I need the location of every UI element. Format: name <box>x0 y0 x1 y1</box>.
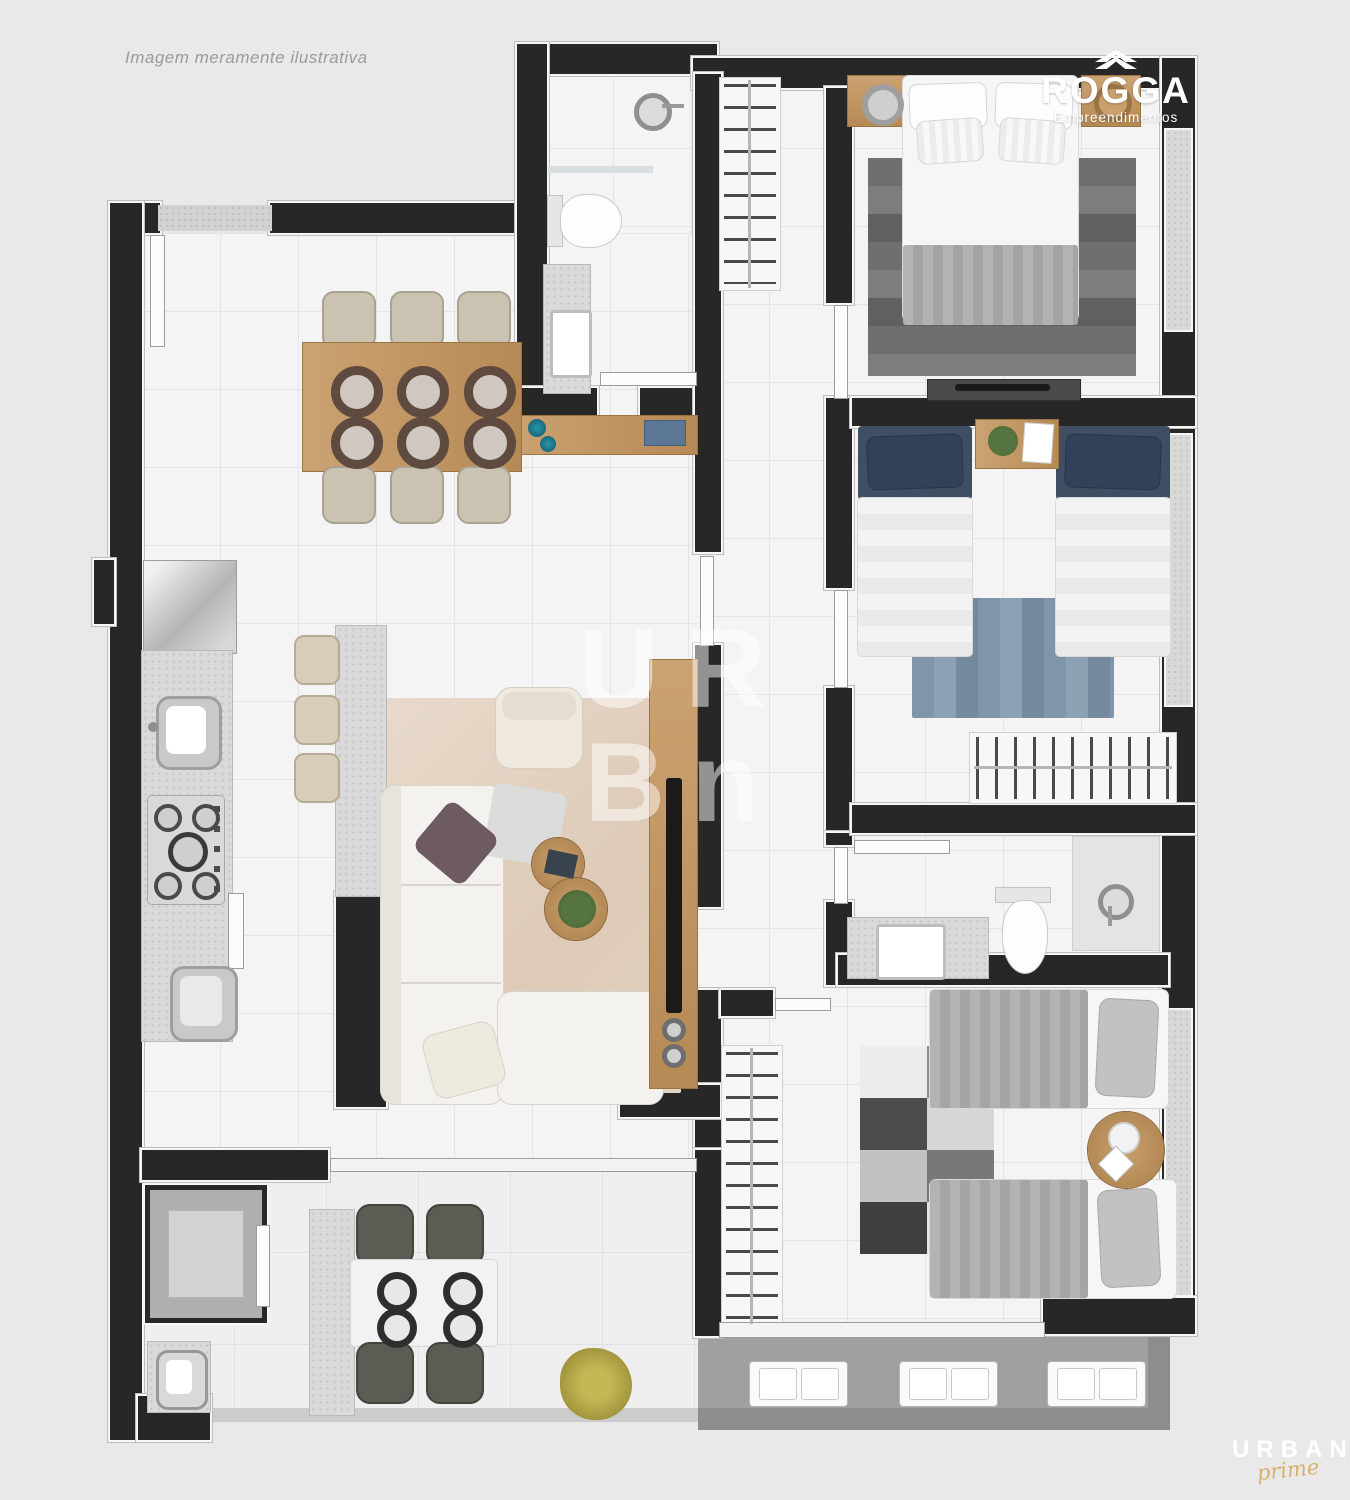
vanity2-sink <box>876 924 946 980</box>
balcony-edge-right <box>1148 1330 1170 1422</box>
bed2-right-pillow <box>1065 434 1161 489</box>
burner-icon <box>168 832 208 872</box>
teal-vase-icon <box>540 436 556 452</box>
bar-stool <box>294 695 340 745</box>
balcony-edge-bottom <box>698 1408 1170 1430</box>
rogga-logo-tagline: Empreendimentos <box>1028 110 1204 125</box>
faucet-icon <box>148 722 158 732</box>
door-bathroom2 <box>834 847 848 904</box>
burner-icon <box>154 804 182 832</box>
dining-chair <box>457 466 511 524</box>
shower2-arm <box>1108 906 1112 926</box>
terrace-chair <box>426 1342 484 1404</box>
place-setting <box>397 366 449 418</box>
watermark-line1: UR <box>560 612 810 726</box>
bathroom1-door-leaf <box>600 372 697 386</box>
bar-stool <box>294 635 340 685</box>
shower-glass-partition <box>548 166 653 173</box>
bed2-left-pillow <box>867 434 963 489</box>
bed2-closet-rail <box>974 766 1172 769</box>
wall-bathroom1-left <box>517 44 547 416</box>
dining-chair <box>322 466 376 524</box>
bed3-bottom-pillow <box>1098 1189 1161 1288</box>
wall-bedroom3-bottom <box>1043 1298 1195 1334</box>
wall-bedroom2-left-a <box>826 398 852 588</box>
rug-patch <box>860 1098 927 1150</box>
master-cushion-left <box>917 118 984 164</box>
plant-icon <box>558 890 596 928</box>
rogga-logo-name: ROGGA <box>1028 72 1204 109</box>
service-closet-floor <box>168 1210 244 1298</box>
terrace-chair <box>426 1204 484 1266</box>
wall-bedroom2-left-b <box>826 688 852 833</box>
rogga-logo: ROGGA Empreendimentos <box>1028 50 1204 125</box>
wall-living-terrace-divider <box>142 1150 328 1180</box>
kitchen-sink-2-basin <box>180 976 222 1026</box>
bed2-decor-sign <box>1023 423 1054 463</box>
ac-unit <box>900 1362 997 1406</box>
ac-fan <box>1058 1369 1094 1399</box>
closet-master-rail <box>748 80 751 288</box>
sofa-chaise <box>498 992 663 1104</box>
dining-chair <box>390 291 444 349</box>
sofa-cushion-seam <box>401 982 501 984</box>
wall-top-left-b <box>270 203 540 233</box>
threshold-bedroom3-balcony <box>719 1322 1045 1338</box>
kitchen-sink-1-basin <box>166 706 206 754</box>
bathroom2-towel-bar <box>854 840 950 854</box>
speaker-icon <box>662 1018 686 1042</box>
nightstand-tray-icon <box>862 84 904 126</box>
speaker-icon <box>662 1044 686 1068</box>
island-counter <box>336 626 386 896</box>
bed2-left-blanket <box>858 498 972 656</box>
door-bedroom3 <box>775 998 831 1011</box>
plant-olive-icon <box>560 1348 632 1420</box>
shower-head-icon <box>634 93 672 131</box>
entry-threshold <box>158 205 272 231</box>
shower-arm <box>662 104 684 108</box>
wall-hall-upper <box>695 74 721 552</box>
door-entry <box>150 235 165 347</box>
watermark: UR Bn <box>560 612 810 840</box>
place-setting <box>443 1308 483 1348</box>
toilet1-bowl <box>560 194 622 248</box>
wall-left-outer <box>110 203 142 1440</box>
window-master <box>1166 130 1191 330</box>
bed3-closet-rail <box>750 1048 753 1324</box>
floor-plan: Imagem meramente ilustrativa UR Bn ROGGA… <box>0 0 1350 1500</box>
place-setting <box>331 366 383 418</box>
place-setting <box>377 1272 417 1312</box>
dining-chair <box>457 291 511 349</box>
threshold-living-terrace <box>330 1158 697 1172</box>
cooktop-knobs <box>214 806 220 894</box>
urban-prime-logo: URBAN prime <box>1232 1438 1344 1482</box>
bed3-top-blanket <box>930 990 1088 1108</box>
dining-chair <box>322 291 376 349</box>
terrace-chair <box>356 1204 414 1266</box>
terrace-bench <box>310 1210 354 1415</box>
sofa-armrest <box>381 786 401 1104</box>
teal-vase-icon <box>528 419 546 437</box>
place-setting <box>443 1272 483 1312</box>
door-master <box>834 305 848 399</box>
sofa-cushion-seam <box>401 884 501 886</box>
shower-head-icon <box>1098 884 1134 920</box>
plant-icon <box>988 426 1018 456</box>
ac-unit <box>750 1362 847 1406</box>
rug-patch <box>860 1202 927 1254</box>
wall-bathroom2-left-a <box>826 833 852 845</box>
place-setting <box>331 417 383 469</box>
door-bedroom2 <box>834 590 848 688</box>
service-closet-door <box>256 1225 270 1307</box>
place-setting <box>464 366 516 418</box>
wall-bedroom2-bathroom2-divider <box>852 805 1195 833</box>
laundry-sink-basin <box>166 1360 192 1394</box>
bar-stool <box>294 753 340 803</box>
place-setting <box>397 417 449 469</box>
watermark-line2: Bn <box>560 726 810 840</box>
wall-island-stub <box>336 893 386 1107</box>
bed3-bottom-blanket <box>930 1180 1088 1298</box>
place-setting <box>377 1308 417 1348</box>
rug-patch <box>860 1150 927 1202</box>
rug-patch <box>860 1046 927 1098</box>
ac-fan <box>952 1369 988 1399</box>
fridge <box>144 561 236 653</box>
toilet2-bowl <box>1002 900 1048 974</box>
dining-chair <box>390 466 444 524</box>
ac-fan <box>802 1369 838 1399</box>
vanity1-sink <box>550 310 592 378</box>
wall-top-bathroom <box>517 44 717 74</box>
ac-fan <box>760 1369 796 1399</box>
ac-fan <box>1100 1369 1136 1399</box>
wall-terrace-right <box>695 1150 721 1336</box>
bed3-top-pillow <box>1096 999 1159 1098</box>
disclaimer-text: Imagem meramente ilustrativa <box>125 48 368 68</box>
wall-bedroom3-entry <box>721 990 773 1016</box>
burner-icon <box>154 872 182 900</box>
ac-fan <box>910 1369 946 1399</box>
kitchen-cabinet-door <box>228 893 244 969</box>
ac-unit <box>1048 1362 1145 1406</box>
master-blanket <box>903 245 1078 325</box>
bed2-right-blanket <box>1056 498 1170 656</box>
terrace-chair <box>356 1342 414 1404</box>
wall-left-jog <box>94 560 114 624</box>
master-tv <box>955 384 1050 391</box>
decor-sign-blue <box>645 421 685 445</box>
place-setting <box>464 417 516 469</box>
